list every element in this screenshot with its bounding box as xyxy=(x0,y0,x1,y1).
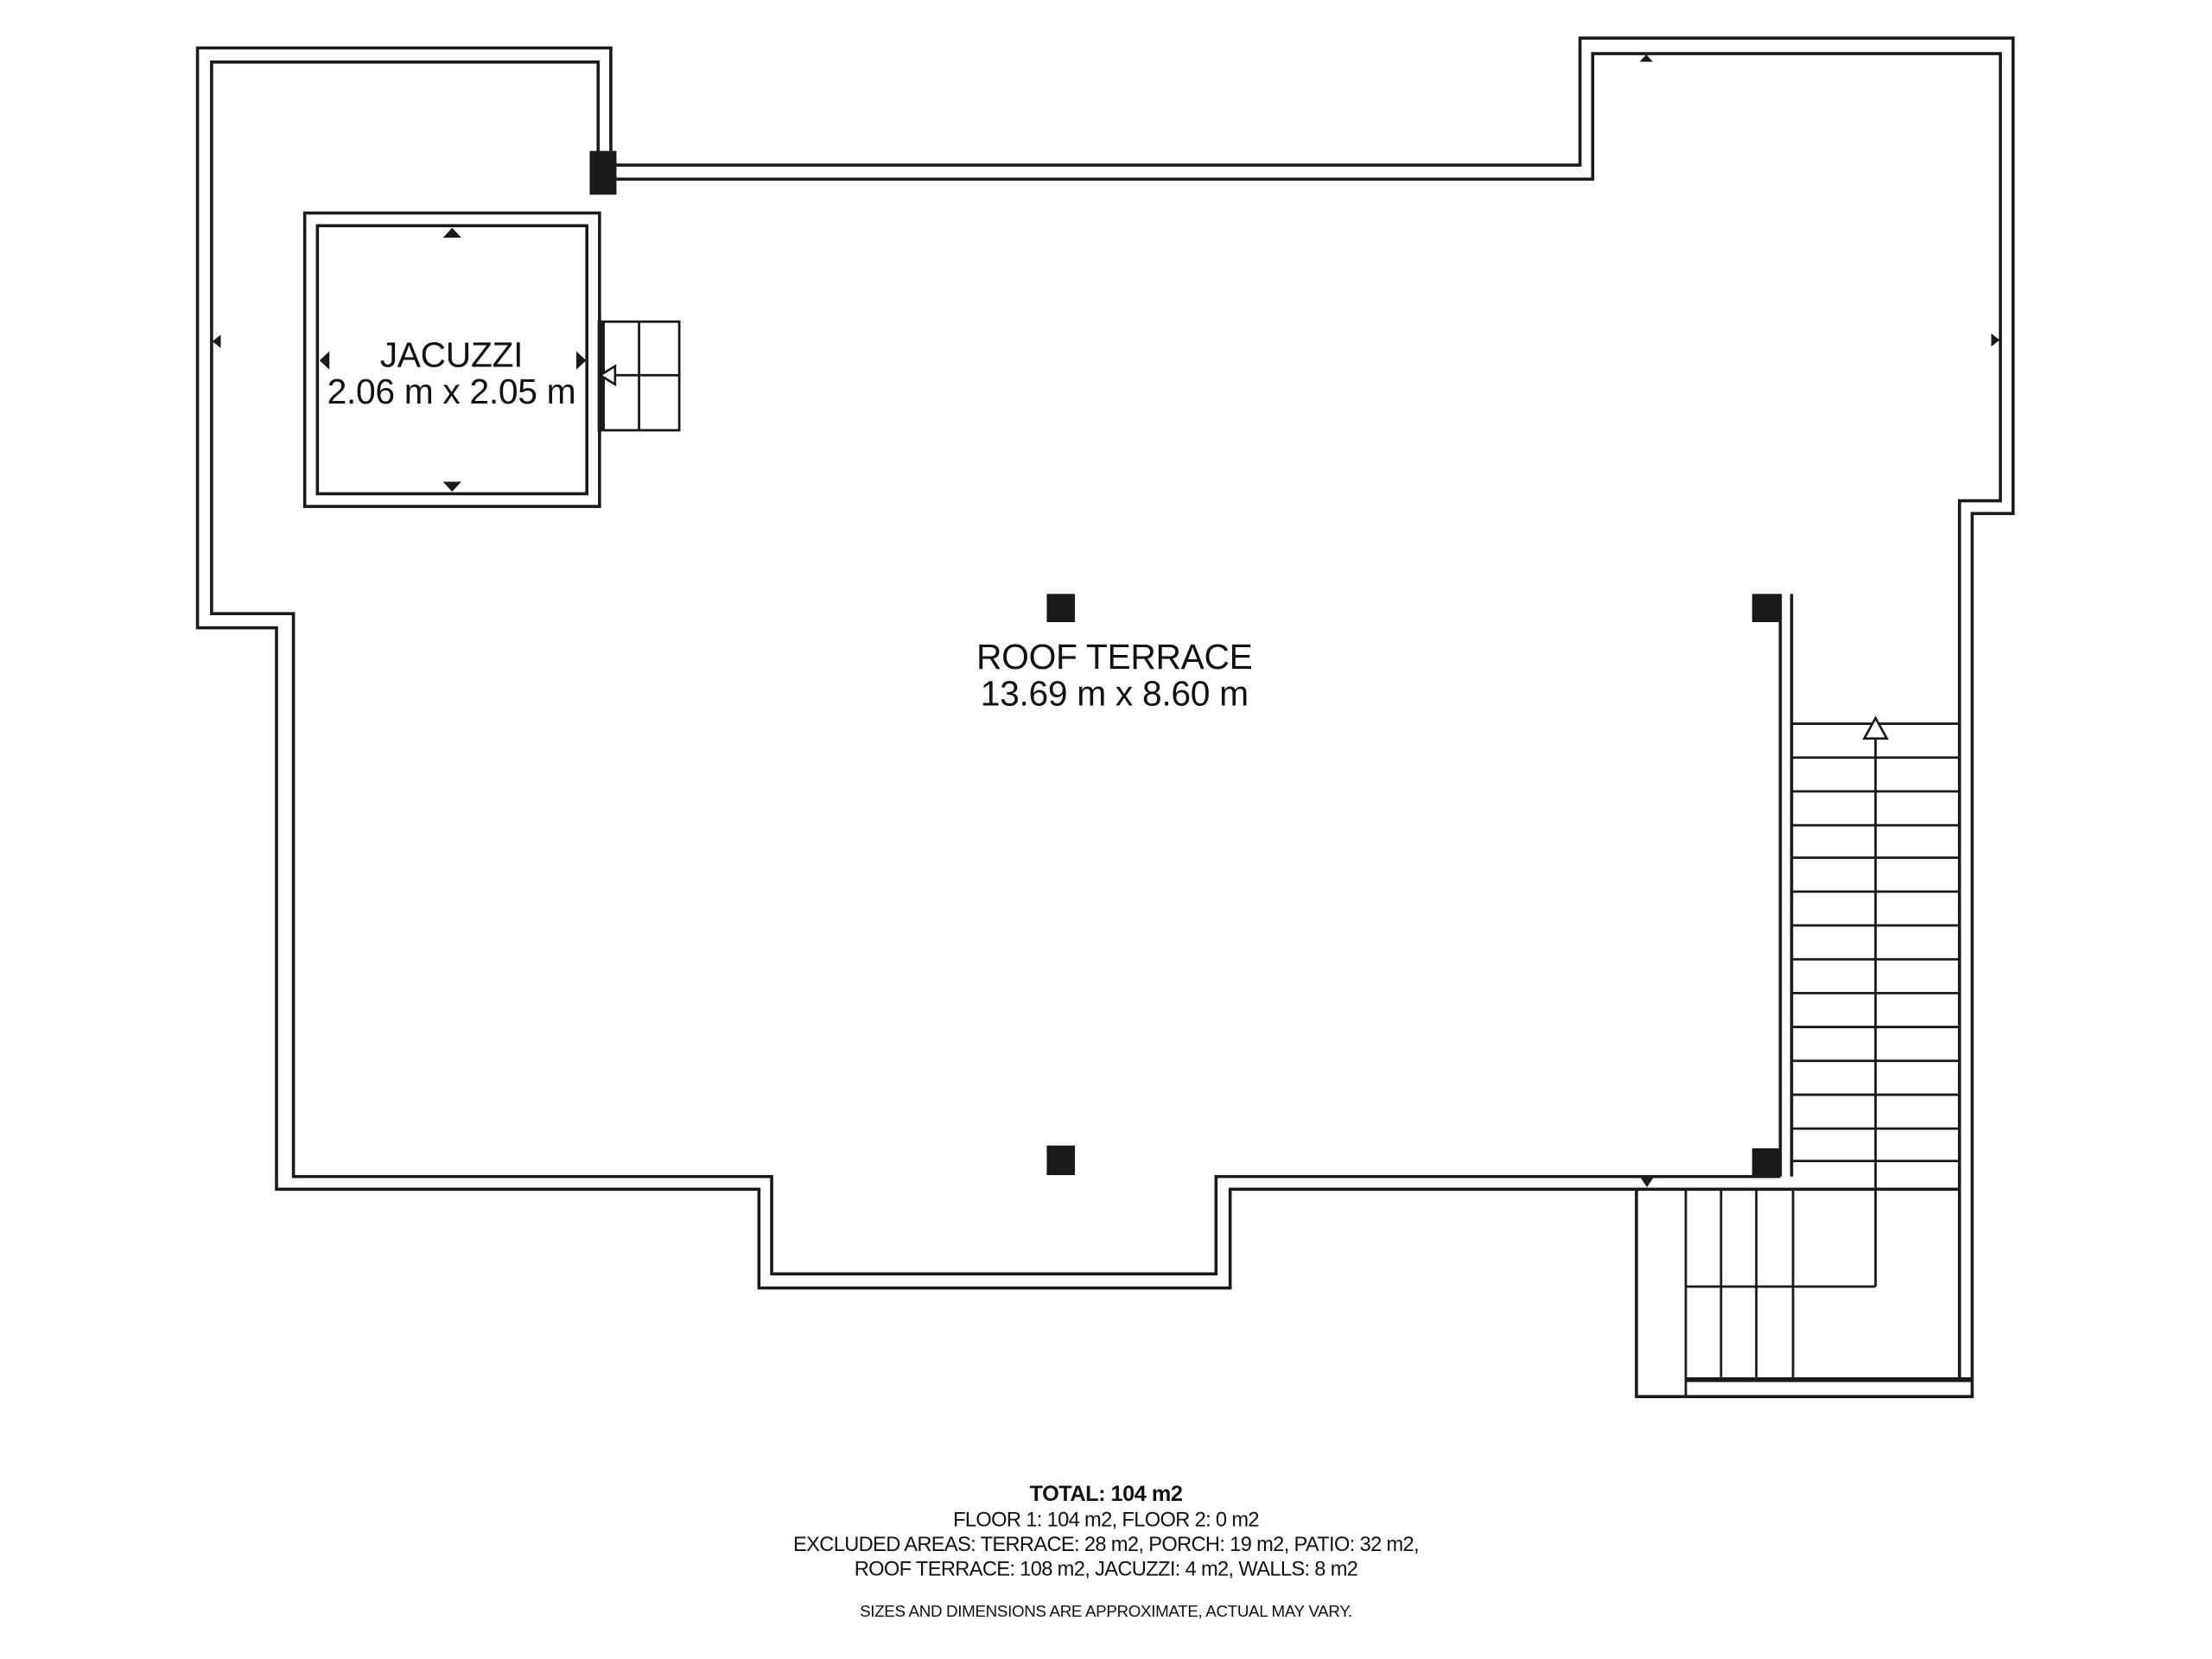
jet-arrow-down-icon xyxy=(443,482,461,492)
floor-plan-canvas: JACUZZI 2.06 m x 2.05 m ROOF TERRACE 13.… xyxy=(0,0,2212,1659)
stairs-lower-landing xyxy=(1686,1189,1972,1396)
roof-terrace-dimensions: 13.69 m x 8.60 m xyxy=(981,673,1249,713)
door-marker-down-icon xyxy=(1640,1178,1653,1187)
wall-inner-boundary xyxy=(212,54,2000,1380)
pillar-bottom-center xyxy=(1046,1146,1075,1175)
pillar-stairs-top xyxy=(1752,594,1781,622)
pillar-stairs-bottom xyxy=(1752,1148,1781,1177)
door-marker-right-icon xyxy=(1991,334,1999,346)
stairs-up-arrow-icon xyxy=(1865,718,1887,739)
summary-floors: FLOOR 1: 104 m2, FLOOR 2: 0 m2 xyxy=(953,1510,1259,1532)
jacuzzi-room: JACUZZI 2.06 m x 2.05 m xyxy=(305,213,600,507)
jet-arrow-right-icon xyxy=(576,352,586,370)
summary-disclaimer: SIZES AND DIMENSIONS ARE APPROXIMATE, AC… xyxy=(860,1602,1352,1620)
jacuzzi-dimensions: 2.06 m x 2.05 m xyxy=(327,372,576,411)
summary-total: TOTAL: 104 m2 xyxy=(1030,1482,1183,1506)
door-marker-up-icon xyxy=(1640,54,1653,61)
jacuzzi-steps xyxy=(599,321,679,430)
pillar-connector xyxy=(589,151,616,195)
roof-terrace-label: ROOF TERRACE xyxy=(976,637,1252,677)
terrace-walls xyxy=(198,38,2013,1396)
jacuzzi-label: JACUZZI xyxy=(380,334,523,374)
jet-arrow-up-icon xyxy=(443,228,461,238)
summary-excluded-2: ROOF TERRACE: 108 m2, JACUZZI: 4 m2, WAL… xyxy=(855,1559,1358,1581)
roof-terrace-room: ROOF TERRACE 13.69 m x 8.60 m xyxy=(976,637,1252,713)
pillar-top-center xyxy=(1046,594,1075,622)
roof-terrace-floor-plan: JACUZZI 2.06 m x 2.05 m ROOF TERRACE 13.… xyxy=(0,0,2212,1659)
plan-summary: TOTAL: 104 m2 FLOOR 1: 104 m2, FLOOR 2: … xyxy=(793,1482,1419,1620)
summary-excluded-1: EXCLUDED AREAS: TERRACE: 28 m2, PORCH: 1… xyxy=(793,1534,1419,1556)
jet-arrow-left-icon xyxy=(320,352,329,370)
wall-outer-boundary xyxy=(198,38,2013,1396)
staircase xyxy=(1686,594,1972,1396)
door-marker-left-icon xyxy=(213,334,221,347)
